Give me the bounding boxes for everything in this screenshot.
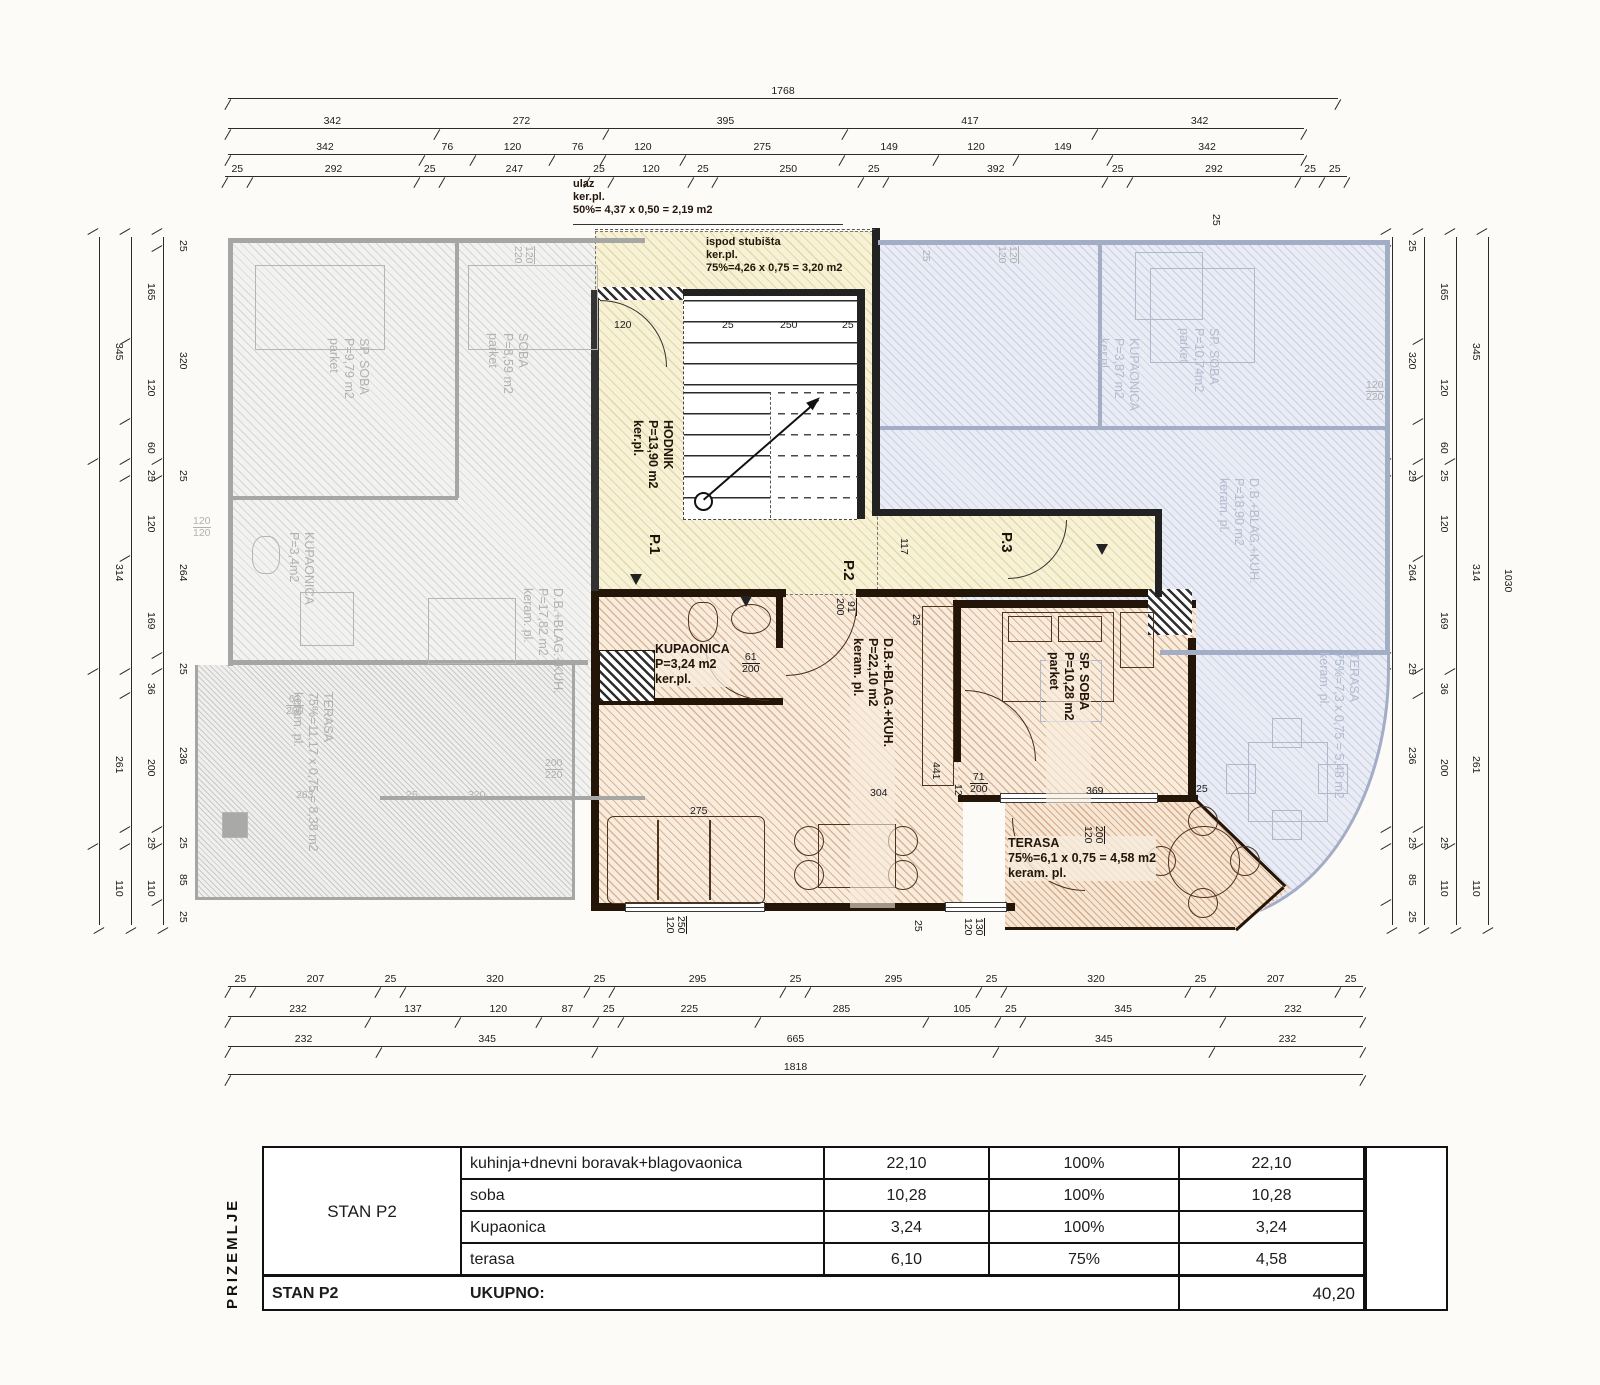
dim-segment: 314 [100, 467, 124, 677]
dim-segment: 25 [1393, 237, 1417, 254]
right-dim-outer: 345314261110 [1456, 237, 1481, 925]
window [945, 902, 1007, 912]
ulaz-label: ulazker.pl.50%= 4,37 x 0,50 = 2,19 m2 [573, 178, 712, 218]
entry-arrow-icon [1096, 544, 1108, 555]
dim-segment: 165 [132, 237, 156, 347]
dim-segment: 25 [1322, 164, 1347, 177]
dim-label: 117 [898, 538, 909, 555]
label-line: keram. pl. [1008, 866, 1156, 881]
dim-label: 25 [920, 250, 931, 262]
dim-value: 120 [193, 527, 211, 539]
dim-segment: 25 [691, 164, 716, 177]
label-line: keram. pl. [850, 638, 865, 908]
chair [794, 826, 824, 856]
hall-wall [872, 228, 880, 516]
dim-value: 220 [545, 769, 563, 781]
ispod-stubista-label: ispod stubištaker.pl.75%=4,26 x 0,75 = 3… [706, 236, 842, 276]
dim-segment: 76 [552, 142, 603, 155]
chair [794, 860, 824, 890]
table-cell: UKUPNO: [462, 1277, 825, 1309]
label-line: SOBA [515, 333, 530, 503]
label-line: D.B.+BLAG.+KUH. [550, 588, 565, 773]
blue-kupaonica-label: KUPAONICAP=3,87 m2ker.pl. [1096, 338, 1141, 498]
dim-segment: 36 [132, 677, 156, 701]
terrace-chair-faded [1272, 810, 1302, 840]
top-dim-row-2: 342272395417342 [228, 110, 1304, 129]
dim-segment: 236 [1393, 677, 1417, 835]
dim-segment: 110 [1457, 852, 1481, 925]
right-dim-middle: 16512060251201693620025110 [1424, 237, 1449, 925]
dim-segment: 345 [1023, 1004, 1223, 1017]
dim-value: 200 [742, 663, 760, 675]
dim-segment: 236 [164, 677, 188, 835]
dim-segment: 25 [783, 974, 808, 987]
dim-segment: 85 [1393, 852, 1417, 909]
label-line: ulaz [573, 178, 712, 191]
label-line: P=10,28 m2 [1061, 652, 1076, 804]
entry-label-p1: P.1 [646, 534, 663, 555]
gray-sp-soba-label: SP. SOBAP=9,79 m2parket [326, 338, 371, 508]
dim-segment: 342 [228, 142, 422, 155]
label-line: ker.pl. [630, 420, 645, 540]
terrace-chair [1188, 888, 1218, 918]
dim-value: 250 [675, 916, 687, 934]
dim-label: 120220 [512, 246, 535, 264]
label-line: SP. SOBA [356, 338, 371, 508]
entry-arrow-icon [740, 596, 752, 607]
dim-segment: 261 [1457, 677, 1481, 851]
dim-label: 25 [406, 790, 418, 801]
table-cell: 3,24 [825, 1212, 990, 1244]
dim-label: 61200 [742, 652, 760, 675]
dim-value: 220 [512, 246, 524, 264]
gray-soba-label: SOBAP=8,59 m2parket [485, 333, 530, 503]
dim-label: 200120 [1082, 826, 1105, 844]
table-cell: 4,58 [1180, 1244, 1365, 1277]
top-dim-row-3: 3427612076120275149120149342 [228, 136, 1304, 155]
shower-faded [1135, 252, 1203, 320]
label-line: ispod stubišta [706, 236, 842, 249]
dim-segment: 25 [228, 974, 253, 987]
dim-segment: 120 [611, 164, 690, 177]
table-cell: terasa [462, 1244, 825, 1277]
dim-segment: 261 [100, 677, 124, 851]
right-dim-inner: 253202526425236258525 [1392, 237, 1417, 925]
label-line: keram. pl. [1216, 478, 1231, 703]
terrace-edge [1005, 927, 1235, 930]
blue-living-label: D.B.+BLAG.+KUH.P=18,90 m2keram. pl. [1216, 478, 1261, 703]
top-dim-row-4: 2529225247251202525025392252922525 [225, 158, 1347, 177]
dim-label: 61200 [286, 694, 304, 717]
stairwell [683, 296, 857, 520]
gray-terrace-edge [195, 897, 575, 900]
dim-segment: 60 [132, 427, 156, 467]
dim-segment: 25 [378, 974, 403, 987]
table-cell: 10,28 [825, 1180, 990, 1212]
apt-left-terrace [195, 665, 575, 900]
label-line: P=18,90 m2 [1231, 478, 1246, 703]
dim-segment: 25 [1105, 164, 1130, 177]
dim-segment: 110 [1425, 852, 1449, 925]
dim-segment: 25 [587, 164, 612, 177]
dim-segment: 320 [1393, 254, 1417, 468]
entry-arrow-icon [630, 574, 642, 585]
dim-label: 25 [1210, 214, 1221, 226]
label-line: parket [485, 333, 500, 503]
dim-segment: 120 [1425, 484, 1449, 564]
label-line: 75%=6,1 x 0,75 = 4,58 m2 [1008, 851, 1156, 866]
sp-soba-label: SP. SOBAP=10,28 m2parket [1046, 652, 1091, 804]
dim-segment: 120 [132, 484, 156, 564]
dim-label: 25 [722, 320, 734, 331]
sofa-cushion-line [709, 820, 711, 900]
dim-label: 263 [296, 790, 314, 801]
dim-segment: 25 [1298, 164, 1323, 177]
living-label: D.B.+BLAG.+KUH.P=22,10 m2keram. pl. [850, 638, 895, 908]
gray-living-label: D.B.+BLAG.+KUH.P=17,82 m2keram. pl. [520, 588, 565, 773]
dim-segment: 320 [403, 974, 587, 987]
hodnik-label: HODNIKP=13,90 m2ker.pl. [630, 420, 675, 540]
label-line: ker.pl. [706, 249, 842, 262]
dim-segment: 25 [1338, 974, 1363, 987]
dim-label: 320 [468, 790, 486, 801]
terrace-post [222, 812, 248, 838]
bottom-dim-row-2: 232137120872522528510525345232 [228, 998, 1363, 1017]
dim-segment: 169 [132, 564, 156, 677]
dim-label: 120220 [1366, 380, 1384, 403]
wall [856, 589, 1166, 597]
dim-segment: 232 [228, 1004, 368, 1017]
dim-segment: 25 [1188, 974, 1213, 987]
table-cell: 100% [990, 1212, 1180, 1244]
entry-label-p2: P.2 [840, 560, 857, 581]
hall-wall [1155, 509, 1162, 597]
shower [599, 650, 655, 702]
dim-label: 250 [780, 320, 798, 331]
prizemlje-label: PRIZEMLJE [224, 1148, 241, 1309]
gray-terrace-edge [572, 665, 575, 900]
dim-segment: 25 [164, 661, 188, 678]
dim-segment: 120 [473, 142, 552, 155]
table-cell: STAN P2 [264, 1277, 462, 1309]
wall [1188, 638, 1196, 802]
hall-wall [872, 509, 1162, 516]
table-cell: 100% [990, 1180, 1180, 1212]
dim-value: 130 [973, 918, 985, 936]
dim-label: 25 [910, 614, 921, 626]
dim-segment: 25 [164, 835, 188, 852]
dim-label: 120 [614, 320, 632, 331]
dim-label: 91200 [834, 598, 857, 616]
dim-segment: 264 [1393, 484, 1417, 660]
dim-segment: 665 [595, 1034, 995, 1047]
dim-segment: 342 [228, 116, 437, 129]
dim-segment: 285 [758, 1004, 926, 1017]
kupaonica-label: KUPAONICAP=3,24 m2ker.pl. [655, 642, 730, 687]
dim-segment: 232 [228, 1034, 379, 1047]
terrace-chair [1230, 846, 1260, 876]
dim-label: 120120 [996, 246, 1019, 264]
table-cell [825, 1277, 990, 1309]
terrace-chair-faded [1272, 718, 1302, 748]
table-cell [990, 1277, 1180, 1309]
table-cell: Kupaonica [462, 1212, 825, 1244]
dim-segment: 207 [253, 974, 378, 987]
dim-segment: 87 [539, 1004, 597, 1017]
dim-label: 71200 [970, 772, 988, 795]
dim-segment: 25 [1425, 467, 1449, 484]
table-cell: 10,28 [1180, 1180, 1365, 1212]
dim-segment: 292 [250, 164, 418, 177]
dim-segment: 120 [132, 347, 156, 427]
wall [591, 589, 786, 597]
stair-wall [857, 289, 865, 519]
label-line: P=8,59 m2 [500, 333, 515, 503]
toilet-faded [252, 536, 280, 574]
dim-segment: 392 [886, 164, 1105, 177]
gray-kupaonica-label: KUPAONICAP=3,4m2 [286, 532, 316, 682]
dim-value: 91 [845, 598, 857, 616]
dim-label: 275 [690, 806, 708, 817]
floorplan-page: { "colors":{"orange_wall":"#241509","yel… [0, 0, 1600, 1385]
dim-segment: 295 [808, 974, 979, 987]
dim-segment: 137 [368, 1004, 458, 1017]
label-line: TERASA [1346, 652, 1361, 882]
dim-value: 120 [996, 246, 1008, 264]
dim-label: 12 [952, 784, 963, 796]
label-line: P=10,74m2 [1191, 328, 1206, 498]
table-faded [428, 598, 516, 664]
dim-label: 25 [1196, 784, 1208, 795]
label-line: 50%= 4,37 x 0,50 = 2,19 m2 [573, 204, 712, 217]
dim-segment: 25 [861, 164, 886, 177]
gray-wall [228, 238, 233, 666]
dim-label: 200220 [545, 758, 563, 781]
dim-segment: 25 [417, 164, 442, 177]
dim-segment: 25 [225, 164, 250, 177]
dim-value: 220 [1366, 391, 1384, 403]
dim-value: 120 [962, 918, 974, 936]
stair-divider [770, 392, 771, 518]
table-cell: 75% [990, 1244, 1180, 1277]
dim-segment: 314 [1457, 467, 1481, 677]
dim-segment: 25 [587, 974, 612, 987]
dim-segment: 105 [926, 1004, 999, 1017]
dim-segment: 232 [1223, 1004, 1363, 1017]
dim-value: 200 [970, 783, 988, 795]
left-dim-middle: 16512060251201693620025110 [131, 237, 156, 925]
kitchen-counter [922, 606, 954, 786]
stair-steps-upper [772, 392, 858, 518]
dim-value: 120 [1007, 246, 1019, 264]
terrace-chair-faded [1226, 764, 1256, 794]
sofa [607, 816, 765, 904]
dim-segment: 60 [1425, 427, 1449, 467]
label-line: P=3,24 m2 [655, 657, 730, 672]
label-line: D.B.+BLAG.+KUH. [880, 638, 895, 908]
dim-segment: 345 [100, 237, 124, 467]
dim-label: 441 [930, 762, 941, 780]
dim-label: 120120 [193, 516, 211, 539]
label-line: parket [326, 338, 341, 508]
dim-segment: 25 [979, 974, 1004, 987]
label-line: P=13,90 m2 [645, 420, 660, 540]
left-dim-outer: 345314261110 [99, 237, 124, 925]
dim-segment: 320 [1004, 974, 1188, 987]
table-cell: 100% [990, 1148, 1180, 1180]
dim-segment: 225 [621, 1004, 757, 1017]
label-line: SP. SOBA [1206, 328, 1221, 498]
label-line: D.B.+BLAG.+KUH. [1246, 478, 1261, 703]
dim-segment: 85 [164, 852, 188, 909]
dim-segment: 25 [998, 1004, 1023, 1017]
label-line: keram. pl. [1316, 652, 1331, 882]
label-line: ker.pl. [1096, 338, 1111, 498]
hall-entry-wall [597, 287, 685, 300]
label-line: 75%=7,3 x 0,75 = 5,48 m2 [1331, 652, 1346, 882]
dim-segment: 169 [1425, 564, 1449, 677]
dim-segment: 120 [458, 1004, 539, 1017]
blue-terasa-label: TERASA75%=7,3 x 0,75 = 5,48 m2keram. pl. [1316, 652, 1361, 882]
dim-segment: 36 [1425, 677, 1449, 701]
dim-label: 130120 [962, 918, 985, 936]
dim-label: 369 [1086, 786, 1104, 797]
gray-terrace-edge [195, 665, 198, 900]
label-line: P=3,87 m2 [1111, 338, 1126, 498]
dim-segment: 272 [437, 116, 607, 129]
blue-sp-soba-label: SP. SOBAP=10,74m2parket [1176, 328, 1221, 498]
area-table-grid: STAN P2kuhinja+dnevni boravak+blagovaoni… [264, 1148, 1446, 1309]
label-line: 75%=4,26 x 0,75 = 3,20 m2 [706, 262, 842, 275]
dim-segment: 232 [1212, 1034, 1363, 1047]
area-table: PRIZEMLJE STAN P2kuhinja+dnevni boravak+… [262, 1146, 1448, 1311]
dim-segment: 25 [164, 467, 188, 484]
washbasin [731, 604, 771, 634]
dim-segment: 76 [422, 142, 473, 155]
dim-segment: 345 [379, 1034, 595, 1047]
pillow [1008, 616, 1052, 642]
left-dim-inner: 253202526425236258525 [163, 237, 188, 925]
dim-segment: 1818 [228, 1062, 1363, 1075]
label-line: ker.pl. [655, 672, 730, 687]
label-line: parket [1176, 328, 1191, 498]
dim-segment: 120 [1425, 347, 1449, 427]
dim-segment: 275 [683, 142, 842, 155]
dim-value: 120 [664, 916, 676, 934]
dim-segment: 110 [100, 852, 124, 925]
dim-segment: 345 [1457, 237, 1481, 467]
bottom-dim-row-1: 25207253202529525295253202520725 [228, 968, 1363, 987]
label-line: ker.pl. [573, 191, 712, 204]
dim-segment: 417 [845, 116, 1096, 129]
table-cell: 22,10 [825, 1148, 990, 1180]
dim-segment: 264 [164, 484, 188, 660]
label-line: P=9,79 m2 [341, 338, 356, 508]
blue-wall [878, 240, 1390, 245]
dim-value: 120 [1082, 826, 1094, 844]
stair-steps [684, 300, 858, 392]
label-line: keram. pl. [520, 588, 535, 773]
dim-segment: 25 [596, 1004, 621, 1017]
dim-label: 250120 [664, 916, 687, 934]
dim-segment: 345 [996, 1034, 1212, 1047]
right-dim-total: 1030 [1488, 237, 1513, 925]
sofa-cushion-line [657, 820, 659, 900]
table-cell: 40,20 [1180, 1277, 1365, 1309]
table-cell: kuhinja+dnevni boravak+blagovaonica [462, 1148, 825, 1180]
gray-wall [228, 238, 645, 243]
dim-segment: 120 [603, 142, 682, 155]
table-cell [1365, 1148, 1446, 1309]
dim-segment: 1030 [1489, 237, 1513, 925]
table-cell: STAN P2 [264, 1148, 462, 1277]
dim-segment: 25 [1393, 908, 1417, 925]
dim-label: 25 [842, 320, 854, 331]
toilet [688, 602, 718, 642]
bottom-dim-row-total: 1818 [228, 1056, 1363, 1075]
dim-label: 25 [912, 920, 923, 932]
dim-segment: 120 [936, 142, 1015, 155]
dim-segment: 200 [1425, 701, 1449, 835]
label-line: P=3,4m2 [286, 532, 301, 682]
label-line: TERASA [320, 692, 335, 897]
dim-segment: 207 [1213, 974, 1338, 987]
dim-value: 200 [1093, 826, 1105, 844]
label-line: KUPAONICA [1126, 338, 1141, 498]
table-cell: soba [462, 1180, 825, 1212]
gray-wall [380, 796, 645, 800]
dim-value: 120 [523, 246, 535, 264]
label-line: P=17,82 m2 [535, 588, 550, 773]
label-line: HODNIK [660, 420, 675, 540]
label-line: SP. SOBA [1076, 652, 1091, 804]
label-line: KUPAONICA [301, 532, 316, 682]
dim-segment: 342 [1110, 142, 1304, 155]
dim-segment: 320 [164, 254, 188, 468]
pillow [1058, 616, 1102, 642]
wall [953, 600, 961, 762]
dim-segment: 342 [1095, 116, 1304, 129]
dim-segment: 110 [132, 852, 156, 925]
dim-value: 200 [286, 705, 304, 717]
table-cell: 6,10 [825, 1244, 990, 1277]
blue-wall [1385, 240, 1390, 655]
dim-segment: 165 [1425, 237, 1449, 347]
dim-label: 304 [870, 788, 888, 799]
dim-segment: 292 [1130, 164, 1298, 177]
dim-segment: 200 [132, 701, 156, 835]
top-dim-row-total: 1768 [228, 80, 1338, 99]
terrace-chair [1188, 806, 1218, 836]
dim-value: 200 [834, 598, 846, 616]
dim-segment: 1768 [228, 86, 1338, 99]
gray-wall [455, 240, 459, 498]
entry-label-p3: P.3 [998, 532, 1015, 553]
ulaz-underline [573, 224, 843, 225]
wall [776, 596, 783, 648]
hall-dashed-edge [595, 229, 875, 230]
dim-segment: 149 [842, 142, 936, 155]
label-line: KUPAONICA [655, 642, 730, 657]
dim-segment: 250 [715, 164, 861, 177]
label-line: P=22,10 m2 [865, 638, 880, 908]
dim-segment: 247 [442, 164, 587, 177]
dim-segment: 25 [164, 237, 188, 254]
label-line: parket [1046, 652, 1061, 804]
wardrobe [1120, 612, 1154, 668]
dim-segment: 295 [612, 974, 783, 987]
table-cell: 22,10 [1180, 1148, 1365, 1180]
